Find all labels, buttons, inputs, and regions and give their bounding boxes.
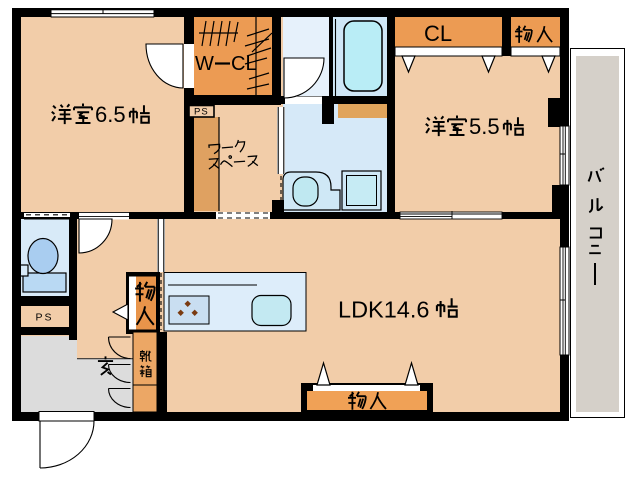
svg-text:5.5: 5.5 — [469, 114, 500, 139]
svg-text:PS: PS — [36, 312, 54, 324]
svg-text:CL: CL — [424, 21, 452, 46]
svg-text:PS: PS — [194, 107, 209, 118]
svg-text:LDK14.6: LDK14.6 — [338, 297, 429, 323]
svg-text:CL: CL — [231, 53, 257, 75]
svg-text:W: W — [195, 53, 214, 75]
svg-text:6.5: 6.5 — [95, 102, 126, 127]
